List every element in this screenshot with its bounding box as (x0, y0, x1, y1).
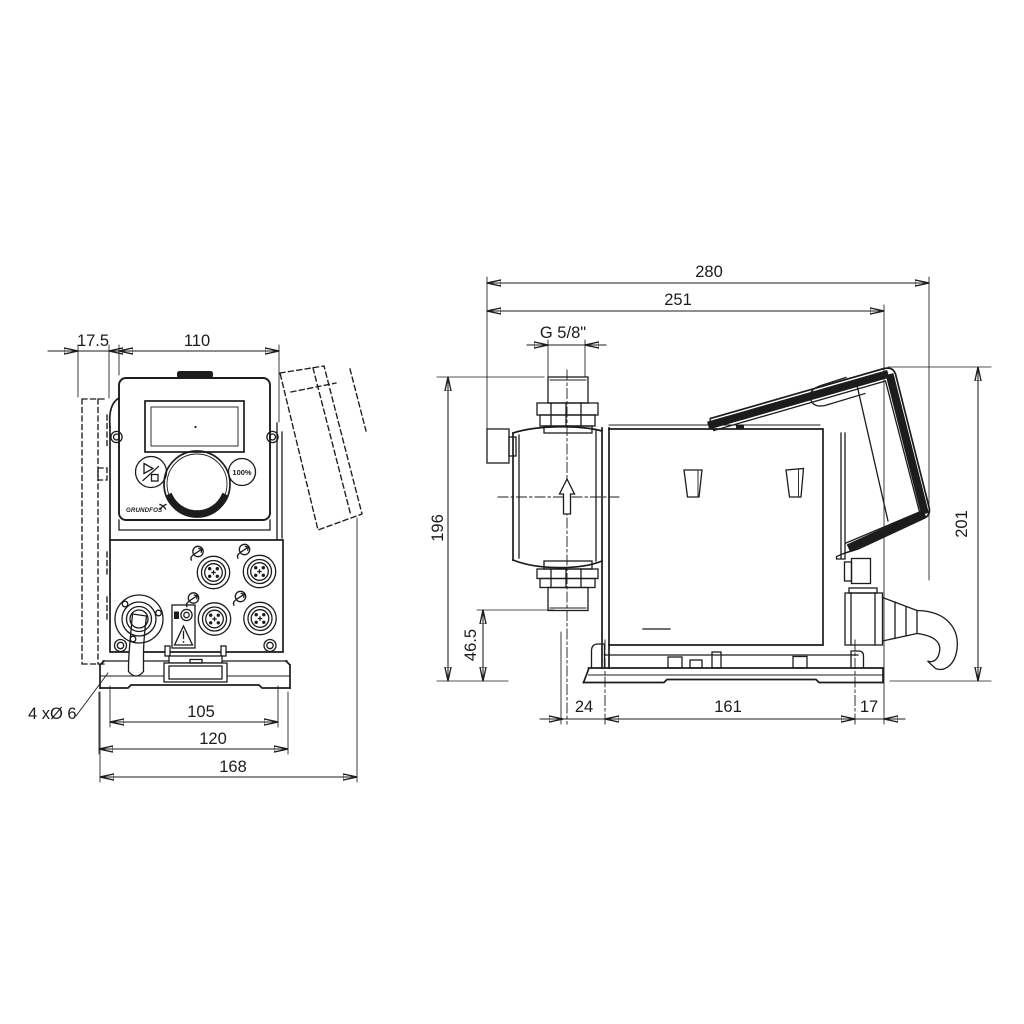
panel-top-tab (177, 371, 213, 378)
discharge-fitting (537, 377, 598, 433)
display (145, 401, 244, 452)
control-cube (710, 368, 929, 559)
vent-slot (786, 469, 804, 498)
dosing-head (487, 377, 609, 668)
dim-plate-width: 120 (99, 692, 288, 754)
dim-label: 251 (664, 291, 692, 309)
holes-label: 4 xØ 6 (28, 705, 77, 723)
base-plate-side (584, 644, 884, 683)
power-connector (845, 559, 958, 670)
warning-label (172, 605, 195, 648)
brand-logo: GRUNDFOS (126, 505, 166, 515)
play-stop-icon (143, 464, 159, 482)
max-capacity-button: 100% (229, 459, 256, 486)
dim-label: 201 (953, 510, 971, 538)
dim-label: 196 (429, 514, 447, 542)
dim-label: 24 (575, 698, 593, 716)
warning-triangle-icon (175, 626, 193, 645)
dim-wall-offset: 17.5 (48, 332, 135, 398)
dim-label: 161 (714, 698, 742, 716)
control-cube-outline-front (280, 366, 366, 530)
dim-label: 120 (199, 730, 227, 748)
vent-slot (684, 470, 702, 497)
wall-bracket (82, 399, 107, 664)
connector-sockets (186, 544, 276, 635)
dim-label: 17.5 (77, 332, 109, 350)
motor-housing (609, 425, 845, 646)
dim-label: 168 (219, 758, 247, 776)
start-stop-button (136, 457, 167, 488)
dim-label: G 5/8" (540, 324, 586, 342)
dim-hole-spacing-front: 105 (110, 686, 278, 727)
dim-depth-to-mount: 251 (487, 291, 884, 724)
holes-callout: 4 xØ 6 (28, 673, 108, 723)
dim-suction-offset: 46.5 (462, 610, 554, 681)
flow-direction-icon (560, 479, 575, 514)
display-cursor-dot (194, 426, 196, 428)
dim-label: 17 (860, 698, 878, 716)
logo-text: GRUNDFOS (126, 507, 163, 514)
dim-head-height: 196 (429, 377, 544, 681)
dim-label: 280 (695, 263, 723, 281)
adjustment-knob (164, 451, 230, 517)
dim-thread: G 5/8" (527, 324, 606, 376)
front-view: 100% GRUNDFOS (28, 332, 366, 782)
suction-fitting (537, 561, 598, 611)
dim-label: 105 (187, 703, 215, 721)
technical-drawing: 100% GRUNDFOS (0, 0, 1024, 1024)
dim-label: 46.5 (462, 629, 480, 661)
dim-label: 110 (184, 332, 210, 350)
bleed-valve-knob (487, 429, 509, 463)
max-capacity-label: 100% (232, 468, 252, 477)
side-view: 280 251 G 5/8" 196 46.5 201 (429, 263, 991, 724)
power-cable-side (917, 611, 957, 670)
